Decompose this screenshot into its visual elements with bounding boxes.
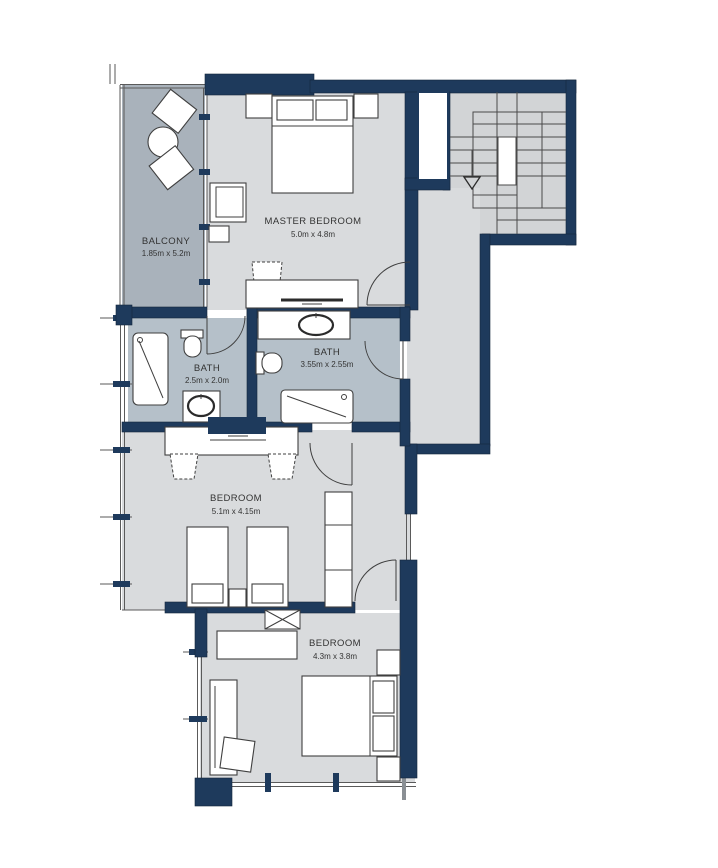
bedroom-bottom-dims: 4.3m x 3.8m — [313, 652, 357, 661]
master-bedroom-label: MASTER BEDROOM — [265, 216, 362, 227]
tv — [208, 417, 266, 434]
bath1-dims: 2.5m x 2.0m — [185, 376, 229, 385]
shelf — [217, 631, 297, 659]
wall-bedroom-bottom-left — [195, 609, 207, 657]
bathtub — [133, 333, 168, 405]
nightstand — [354, 94, 378, 118]
nightstand — [246, 94, 272, 118]
wall-corridor-jog — [408, 444, 490, 454]
side-table — [209, 226, 229, 242]
wall-corridor-right — [480, 234, 490, 446]
wall-bath2-right-lower — [400, 379, 410, 446]
wall-bottom-left-block — [195, 778, 232, 806]
master-bed — [272, 96, 353, 193]
wardrobe — [325, 492, 352, 607]
balcony-dims: 1.85m x 5.2m — [142, 249, 191, 258]
wall-right-mid — [405, 444, 417, 514]
desk-chair — [268, 454, 296, 479]
pillow — [277, 100, 313, 120]
shaft — [418, 92, 448, 180]
bath2-label: BATH — [314, 347, 340, 358]
desk-chair — [170, 454, 198, 479]
sink-counter — [258, 311, 350, 339]
wall-stair-bottom — [482, 234, 576, 245]
bedroom-mid-dims: 5.1m x 4.15m — [212, 507, 261, 516]
shower-tub — [281, 390, 353, 423]
bath1-label: BATH — [194, 363, 220, 374]
nightstand — [377, 757, 400, 781]
pillow — [373, 681, 394, 713]
floor-plan: BALCONY 1.85m x 5.2m MASTER BEDROOM 5.0m… — [0, 0, 718, 868]
bedroom-mid-label: BEDROOM — [210, 493, 262, 504]
twin-bed — [247, 527, 288, 607]
wall-stair-right — [566, 80, 576, 245]
nightstand — [229, 589, 246, 607]
wall-right-low — [400, 560, 417, 778]
double-bed — [302, 676, 397, 756]
desk-chair — [220, 737, 255, 772]
bedroom-bottom-label: BEDROOM — [309, 638, 361, 649]
twin-bed — [187, 527, 228, 607]
wall-top-header — [205, 74, 314, 95]
master-bedroom-dims: 5.0m x 4.8m — [291, 230, 335, 239]
floor-plan-canvas: BALCONY 1.85m x 5.2m MASTER BEDROOM 5.0m… — [0, 0, 718, 868]
wall-master-right — [405, 92, 418, 310]
pillow — [316, 100, 347, 120]
wall-bath2-right-upper — [400, 307, 410, 341]
stair-landing — [498, 137, 516, 185]
pillow — [373, 716, 394, 751]
hall-upper-floor — [418, 188, 480, 234]
toilet — [256, 352, 282, 374]
bath2-dims: 3.55m x 2.55m — [301, 360, 354, 369]
armchair — [210, 183, 246, 222]
balcony-label: BALCONY — [142, 236, 190, 247]
wardrobe-x-box — [265, 610, 300, 629]
wall-master-bottom-left — [122, 307, 207, 318]
nightstand — [377, 650, 400, 675]
wall-left-stub — [116, 305, 132, 325]
